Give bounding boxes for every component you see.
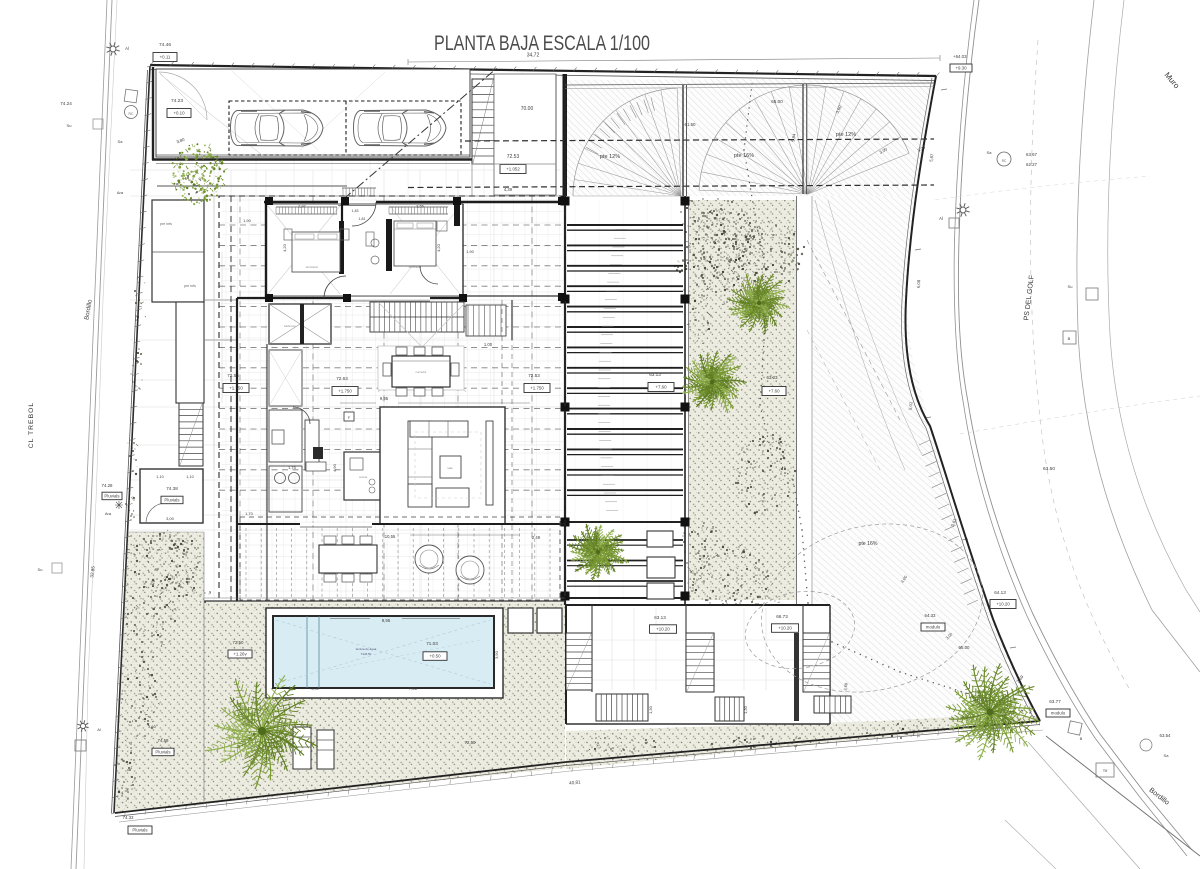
svg-text:pre infs: pre infs	[184, 284, 196, 288]
svg-text:72.53: 72.53	[507, 154, 520, 160]
svg-text:1,30: 1,30	[648, 705, 653, 714]
svg-text:+0.11: +0.11	[160, 55, 171, 60]
svg-text:61.50: 61.50	[685, 122, 697, 127]
svg-text:2,97: 2,97	[298, 205, 305, 209]
svg-text:10,55: 10,55	[385, 534, 396, 539]
svg-text:Al: Al	[939, 216, 943, 221]
svg-text:Pluvials: Pluvials	[132, 828, 148, 833]
svg-text:pte 16%: pte 16%	[858, 541, 877, 547]
svg-text:1,10: 1,10	[156, 475, 163, 479]
svg-text:3,90: 3,90	[311, 687, 318, 691]
svg-text:3,90: 3,90	[494, 650, 499, 659]
svg-text:Al: Al	[125, 46, 129, 51]
svg-text:+9.30: +9.30	[955, 66, 967, 71]
svg-text:Sa: Sa	[987, 150, 993, 155]
svg-text:Pluvials: Pluvials	[155, 750, 171, 755]
svg-text:2,49: 2,49	[532, 535, 541, 540]
svg-text:74.23: 74.23	[171, 98, 183, 104]
svg-text:9,95: 9,95	[380, 396, 389, 401]
svg-text:cocina: cocina	[359, 475, 368, 479]
svg-text:1,90: 1,90	[466, 249, 475, 254]
svg-text:4,20: 4,20	[436, 243, 441, 252]
svg-text:pre infs: pre infs	[160, 222, 172, 226]
svg-text:Al: Al	[97, 727, 101, 732]
svg-text:bathroom: bathroom	[284, 324, 296, 328]
svg-text:63.50: 63.50	[1043, 466, 1055, 472]
svg-text:Su: Su	[67, 123, 72, 128]
svg-text:1,45: 1,45	[352, 209, 359, 213]
svg-text:71.03: 71.03	[426, 641, 438, 646]
svg-text:1,90: 1,90	[243, 218, 252, 223]
svg-text:+10.20: +10.20	[656, 627, 670, 632]
svg-text:3,00: 3,00	[166, 516, 175, 521]
svg-text:Ara: Ara	[105, 511, 112, 516]
svg-text:3,55: 3,55	[416, 205, 423, 209]
svg-text:1,70: 1,70	[288, 465, 297, 470]
svg-text:Su: Su	[38, 567, 43, 572]
svg-text:modulo: modulo	[926, 625, 941, 630]
svg-text:RC: RC	[1002, 159, 1007, 163]
svg-text:5,01: 5,01	[908, 401, 914, 410]
svg-text:+1.750: +1.750	[338, 389, 352, 394]
svg-text:4,90: 4,90	[332, 463, 337, 472]
svg-text:7,60: 7,60	[409, 686, 418, 691]
svg-text:62:27: 62:27	[1026, 162, 1038, 167]
svg-text:1,30: 1,30	[743, 705, 748, 714]
svg-text:+64.03: +64.03	[953, 54, 967, 59]
svg-text:Pluvials: Pluvials	[164, 498, 180, 503]
svg-text:+0.50: +0.50	[429, 654, 441, 659]
svg-text:72.53: 72.53	[528, 373, 540, 378]
svg-text:Ara: Ara	[117, 190, 124, 195]
svg-text:9,95: 9,95	[382, 618, 391, 623]
svg-text:+7.60: +7.60	[768, 389, 780, 394]
svg-text:70.00: 70.00	[521, 106, 534, 112]
svg-text:66.73: 66.73	[776, 614, 788, 619]
svg-text:63.13: 63.13	[654, 615, 666, 620]
svg-text:74.38: 74.38	[166, 486, 178, 491]
svg-text:+10.20: +10.20	[778, 626, 792, 631]
svg-text:63,67: 63,67	[1026, 152, 1038, 157]
svg-text:63.13: 63.13	[649, 372, 661, 377]
svg-text:3,60: 3,60	[148, 724, 157, 729]
svg-text:63.54: 63.54	[1160, 733, 1172, 738]
svg-text:lamina de agua: lamina de agua	[356, 647, 377, 651]
svg-text:4,20: 4,20	[282, 243, 287, 252]
svg-text:Sa: Sa	[118, 139, 124, 144]
svg-text:modulo: modulo	[1051, 711, 1066, 716]
svg-text:1.00: 1.00	[484, 342, 493, 347]
svg-text:+1.26v: +1.26v	[233, 652, 247, 657]
svg-text:74.33: 74.33	[123, 815, 135, 820]
svg-text:1,81: 1,81	[359, 217, 366, 221]
svg-text:+0.10: +0.10	[173, 111, 185, 116]
svg-text:pte 12%: pte 12%	[836, 132, 856, 138]
svg-text:72.63: 72.63	[336, 376, 348, 381]
svg-text:pte 16%: pte 16%	[734, 153, 754, 159]
svg-text:+7.60: +7.60	[655, 385, 667, 390]
svg-text:B: B	[1068, 336, 1071, 341]
svg-text:65.00: 65.00	[771, 99, 783, 104]
svg-text:63.77: 63.77	[1049, 699, 1061, 704]
svg-text:comedor: comedor	[416, 370, 427, 374]
svg-text:4,39: 4,39	[504, 187, 513, 192]
svg-text:72.50: 72.50	[465, 740, 477, 745]
svg-text:+10.20: +10.20	[996, 602, 1010, 607]
svg-text:dormitorio: dormitorio	[306, 265, 319, 269]
svg-text:74.28: 74.28	[102, 483, 114, 488]
svg-text:B: B	[1080, 736, 1083, 741]
svg-text:64.33: 64.33	[925, 613, 937, 618]
svg-text:CL TREBOL: CL TREBOL	[28, 402, 35, 448]
svg-text:Su: Su	[1068, 284, 1073, 289]
svg-text:Sa: Sa	[1164, 753, 1170, 758]
svg-text:74.24: 74.24	[60, 101, 72, 106]
svg-text:74.58: 74.58	[158, 738, 170, 743]
svg-text:63.23: 63.23	[767, 375, 779, 380]
svg-text:PLANTA BAJA ESCALA 1/100: PLANTA BAJA ESCALA 1/100	[434, 32, 650, 55]
svg-text:74.46: 74.46	[159, 42, 171, 48]
svg-text:sala: sala	[447, 466, 453, 470]
svg-text:1,70: 1,70	[245, 511, 254, 516]
svg-text:65.00: 65.00	[959, 645, 971, 650]
svg-text:64.13: 64.13	[994, 590, 1006, 595]
svg-text:1,10: 1,10	[186, 475, 193, 479]
svg-text:6,08: 6,08	[916, 279, 921, 288]
svg-text:72.50: 72.50	[233, 640, 245, 645]
svg-text:Pluvials: Pluvials	[104, 494, 120, 499]
svg-text:+1.750: +1.750	[530, 386, 544, 391]
svg-text:+1.052: +1.052	[506, 167, 520, 172]
svg-text:pte 12%: pte 12%	[600, 154, 620, 160]
svg-text:74x8,50: 74x8,50	[361, 652, 372, 656]
svg-text:RC: RC	[129, 112, 134, 116]
